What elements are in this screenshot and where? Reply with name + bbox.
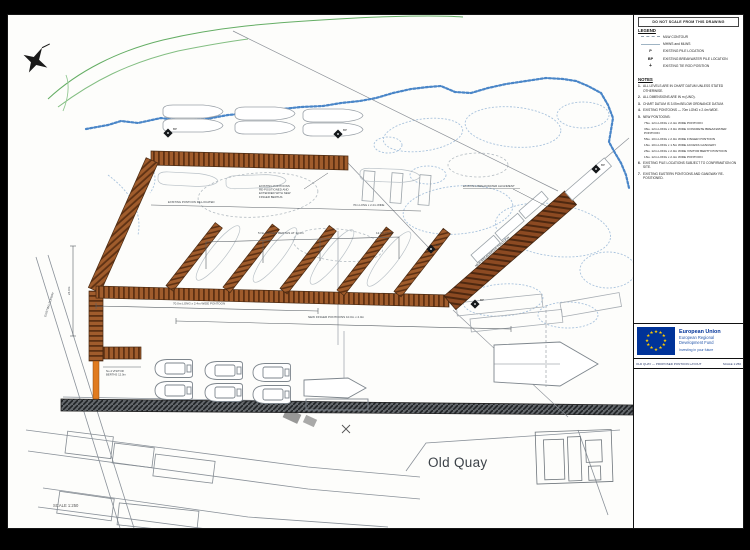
note-subitem: 1No. 12m LONG x 2.4m WIDE PONTOON [644, 155, 740, 159]
note-item: 1. ALL LEVELS ARE IN CHART DATUM UNLESS … [638, 84, 740, 93]
note-item: 5. NEW PONTOONS: [638, 115, 740, 119]
note-subitem: 7No. 12m LONG x 2.4m WIDE PONTOON [644, 121, 740, 125]
note-item: 2. ALL DIMENSIONS ARE IN m (UNO). [638, 95, 740, 99]
legend-item: P EXISTING PILE LOCATION [638, 48, 741, 55]
old-quay-building [535, 429, 613, 484]
north-arrow-icon [17, 35, 57, 79]
svg-text:BP: BP [480, 298, 484, 302]
west-diagonal-pontoon [88, 158, 158, 293]
svg-text:BP: BP [173, 127, 177, 131]
svg-text:NEW FINGER PONTOONS 10.0m x 2.: NEW FINGER PONTOONS 10.0m x 2.0m [308, 315, 365, 319]
note-subitem: 2No. 12m LONG x 2.0m WIDE VISITOR BERTH … [644, 149, 740, 153]
drawing-scale: SCALE 1:250 [723, 362, 741, 366]
site-plan: BP BP BP BP BP EXISTING PONTOONS RE-POSI… [8, 15, 633, 528]
svg-text:BP: BP [601, 163, 605, 167]
svg-text:70m LONG x 2.4m WIDE: 70m LONG x 2.4m WIDE [353, 203, 385, 207]
note-subitem: 5No. 10m LONG x 2.0m WIDE FINGER PONTOON [644, 137, 740, 141]
svg-text:EXISTING BREAKWATER ALIGNMENT: EXISTING BREAKWATER ALIGNMENT [463, 184, 515, 188]
finger-pontoon [166, 223, 222, 292]
svg-text:5 No. FINGER BERTHS AT 12.0m: 5 No. FINGER BERTHS AT 12.0m [258, 231, 304, 235]
svg-text:BP: BP [343, 128, 347, 132]
drawing-title: OLD QUAY — PROPOSED PONTOON LAYOUT [636, 362, 701, 366]
north-pontoon [151, 151, 348, 170]
tie-rod-symbol: + [638, 63, 663, 69]
svg-text:12.0m (TYP): 12.0m (TYP) [376, 231, 393, 235]
svg-text:BERTHS 12.0m: BERTHS 12.0m [106, 373, 127, 377]
access-gangway [93, 361, 99, 399]
notes-title: NOTES [638, 77, 740, 82]
note-item: 3. CHART DATUM IS 3.05m BELOW ORDNANCE D… [638, 102, 740, 106]
svg-text:70.0m LONG x 2.4m WIDE PONTOON: 70.0m LONG x 2.4m WIDE PONTOON [173, 302, 225, 306]
buildings [57, 408, 613, 528]
svg-text:EXISTING PONTOON RE-LOCATED: EXISTING PONTOON RE-LOCATED [168, 200, 215, 204]
eu-logo-text: European Union European Regional Develop… [679, 330, 721, 351]
info-panel: DO NOT SCALE FROM THIS DRAWING LEGEND ML… [633, 15, 743, 528]
solid-line-icon [641, 44, 660, 45]
svg-text:BP: BP [436, 243, 440, 247]
motor-boats [155, 342, 598, 410]
west-vertical-pontoon [89, 291, 103, 361]
eu-logo-block: ★★ ★★ ★★ ★★ ★★ ★★ European Union Europea… [634, 323, 743, 359]
breakwater-pontoon [444, 191, 577, 310]
old-quay-label: Old Quay [428, 455, 487, 470]
pile-symbol: P [638, 49, 663, 53]
finger-pontoon [394, 228, 450, 297]
svg-text:24.0m: 24.0m [67, 286, 71, 295]
svg-text:FINGER BERTHS: FINGER BERTHS [259, 195, 282, 199]
title-block-row: OLD QUAY — PROPOSED PONTOON LAYOUT SCALE… [634, 359, 743, 369]
notes-block: NOTES 1. ALL LEVELS ARE IN CHART DATUM U… [638, 77, 740, 181]
dashed-line-icon [641, 36, 660, 37]
legend-item: BP EXISTING BREAKWATER PILE LOCATION [638, 55, 741, 62]
quay-wall [61, 399, 633, 415]
coastline-contours [48, 16, 463, 111]
note-subitem: 1No. 10m LONG x 1.5m WIDE ACCESS GANGWAY [644, 143, 740, 147]
legend-item: MHWS and MLWS [638, 40, 741, 47]
eu-flag-icon: ★★ ★★ ★★ ★★ ★★ ★★ [637, 327, 675, 355]
scale-note: SCALE 1:250 [53, 503, 79, 508]
legend-item: + EXISTING TIE ROD POSITION [638, 63, 741, 70]
do-not-scale-warning: DO NOT SCALE FROM THIS DRAWING [638, 17, 739, 27]
stub-pontoon [103, 347, 141, 359]
legend-item: MLW CONTOUR [638, 33, 741, 40]
moored-yachts [163, 105, 363, 136]
note-item: 6. EXISTING PILE LOCATIONS SUBJECT TO CO… [638, 161, 740, 170]
drawing-sheet: BP BP BP BP BP EXISTING PONTOONS RE-POSI… [7, 14, 744, 529]
note-item: 4. EXISTING PONTOONS — 70m LONG x 2.4m W… [638, 108, 740, 112]
breakwater-pile-symbol: BP [638, 57, 663, 61]
note-subitem: 3No. 12m LONG x 3.0m WIDE CONCRETE BREAK… [644, 127, 740, 135]
legend-block: LEGEND MLW CONTOUR MHWS and MLWS P EXIST… [638, 28, 741, 70]
note-item: 7. EXISTING EASTERN PONTOONS AND GANGWAY… [638, 172, 740, 181]
